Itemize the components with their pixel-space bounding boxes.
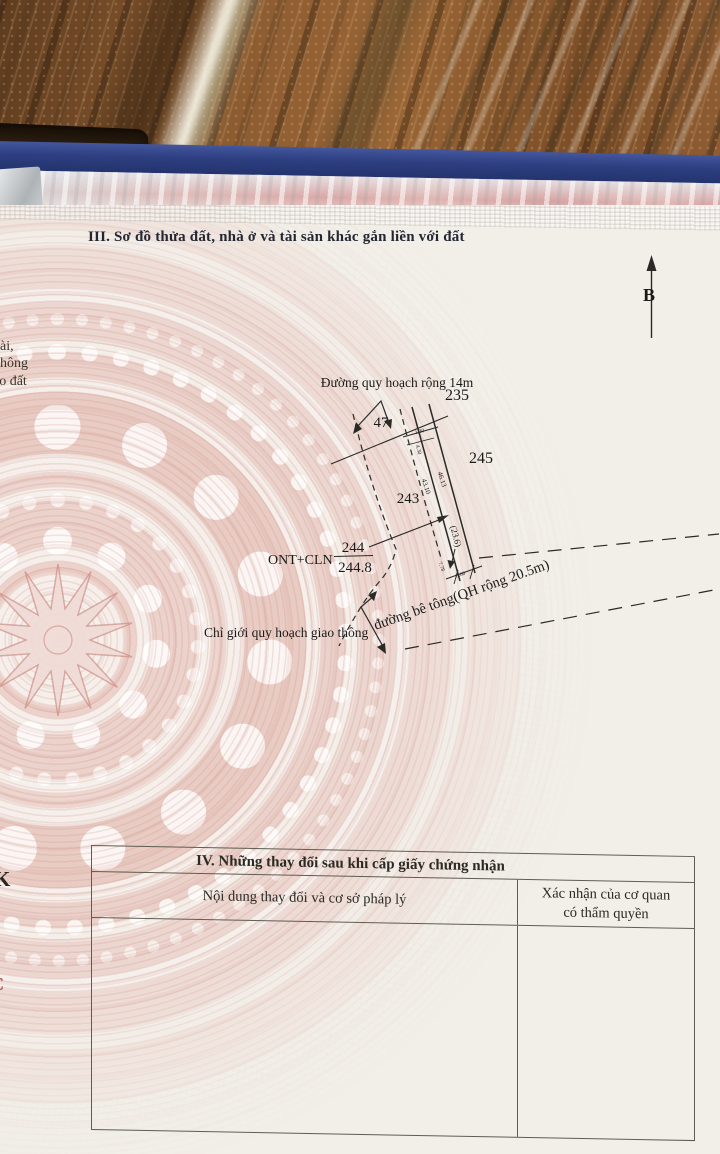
parcel-edge-right [429,404,475,573]
road-dashed-line-upper [479,534,719,558]
changes-table-col1-header: Nội dung thay đổi và cơ sở pháp lý [92,872,518,925]
dimension-right-edge: 46.13 [436,471,449,489]
parcel-number-fraction: 244 244.8 [334,540,373,576]
changes-table: IV. Những thay đổi sau khi cấp giấy chứn… [91,845,695,1141]
parcel-245-label: 245 [469,450,493,467]
planning-boundary-label: Chỉ giới quy hoạch giao thông [204,625,368,640]
dimension-bottom-a: 7.78 [436,561,445,572]
concrete-road-label: đường bê tông(QH rộng 20.5m) [372,557,552,634]
dimension-top-a: 1.30 [414,428,425,436]
parcel-243-label: 243 [397,491,420,507]
parcel-47-label: 47 [374,415,390,431]
parcel-area-label: 244.8 [338,560,372,576]
parcel-number-label: 244 [342,540,365,556]
north-label: B [643,285,655,305]
changes-table-col2-line2: có thẩm quyền [518,902,694,923]
parcel-235-label: 235 [445,387,469,404]
certificate-photo: III. Sơ đồ thửa đất, nhà ở và tài sản kh… [0,0,720,1154]
changes-table-body-col1 [92,918,518,1137]
dimension-top-b: 4.30 [414,444,422,455]
north-arrow-icon: B [643,255,657,338]
changes-table-body-col2 [518,926,694,1140]
land-use-code-label: ONT+CLN [268,553,333,568]
changes-table-body-row [92,918,694,1140]
dimension-left-edge: 43.10 [420,478,433,496]
changes-table-col2-header: Xác nhận của cơ quan có thẩm quyền [518,880,694,928]
